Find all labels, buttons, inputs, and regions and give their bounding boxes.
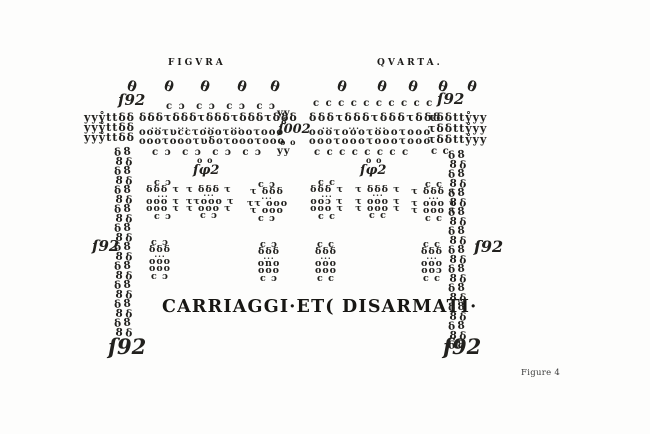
upper-block-1: c ɔδδδ τ···οοο τοοο τc ɔ xyxy=(144,179,182,220)
troop-oval-2: θ xyxy=(162,79,175,95)
lower-block-3: c cδδδ···οοοοοοc c xyxy=(310,241,342,282)
block-line: c c xyxy=(415,275,449,282)
upper-block-4: c cδδδ τ···οοɔ τοοο τc c xyxy=(309,179,345,220)
lower-block-1: c ɔδδδ···οοοοοοc ɔ xyxy=(143,239,177,280)
troop-oval-3: θ xyxy=(198,79,211,95)
band-row-left-flags: δδδτδδδτδδδτδδδτδδδ xyxy=(139,112,298,123)
troop-oval-8: θ xyxy=(406,79,419,95)
lower-block-2: c ɔδδδ···οnοοοοc ɔ xyxy=(252,241,286,282)
band-row-left-circles-2: οοοτοοοτυδοτοοοτοοο xyxy=(139,137,285,147)
center-yy-bottom: yy xyxy=(277,147,291,157)
figure-page: FIGVRA QVARTA. CARRIAGGI·ET( DISARMATI· … xyxy=(0,0,650,434)
band-row-right-flags: δδδτδδδτδδδτδδδ xyxy=(309,112,442,123)
troop-oval-5: θ xyxy=(268,79,281,95)
banner-carriaggi-et-disarmati: CARRIAGGI·ET( DISARMATI· xyxy=(162,297,477,317)
lower-block-4: c cδδδ···οοοοοɔc c xyxy=(415,241,449,282)
title-figura: FIGVRA xyxy=(168,58,226,68)
troop-oval-10: θ xyxy=(465,79,478,95)
upper-block-5: τ δδδ τ···τ οοο ττ οοο τc c xyxy=(354,186,402,220)
left-chain-column: δ88δδ88δδ88δδ88δδ88δδ88δδ88δδ88δδ88δδ88δ xyxy=(114,147,133,337)
chain-link: δ8 xyxy=(448,339,468,350)
count-upper-mid-left: ſφ2 xyxy=(193,164,219,177)
troop-oval-4: θ xyxy=(235,79,248,95)
band-c-row-right-bottom: c c c c c c c c xyxy=(314,148,410,158)
upper-block-2: τ δδδ τ···ττοοο ττ οοο τc ɔ xyxy=(186,186,232,220)
figure-caption: Figure 4 xyxy=(521,368,560,378)
count-mid-right: ſ92 xyxy=(474,239,503,255)
right-edge-cluster-3: τδδttẙyy xyxy=(428,134,487,145)
troop-oval-6: θ xyxy=(335,79,348,95)
upper-block-3: c ɔτ δδδ···ττ οοοτ οοοc ɔ xyxy=(247,181,287,222)
chain-link: 8δ xyxy=(115,327,135,338)
count-upper-mid-right: ſφ2 xyxy=(360,164,386,177)
band-row-right-circles-2: οοοτοοοτοοοτοοο xyxy=(309,137,432,147)
center-oo: o o xyxy=(280,138,296,146)
troop-oval-7: θ xyxy=(375,79,388,95)
left-edge-cluster-3: yyẙttδδ xyxy=(84,132,135,143)
title-quarta: QVARTA. xyxy=(377,58,443,68)
upper-block-6: c cτ δδδ τ···τ οοο ττ οοο τc c xyxy=(411,181,457,222)
count-band-center: ſ002 xyxy=(278,123,311,136)
right-chain-column: δ88δδ88δδ88δδ88δδ88δδ88δδ88δδ88δδ88δδ88δ… xyxy=(448,150,467,350)
band-c-row-right-top: c c c c c c c c c c xyxy=(313,99,434,109)
